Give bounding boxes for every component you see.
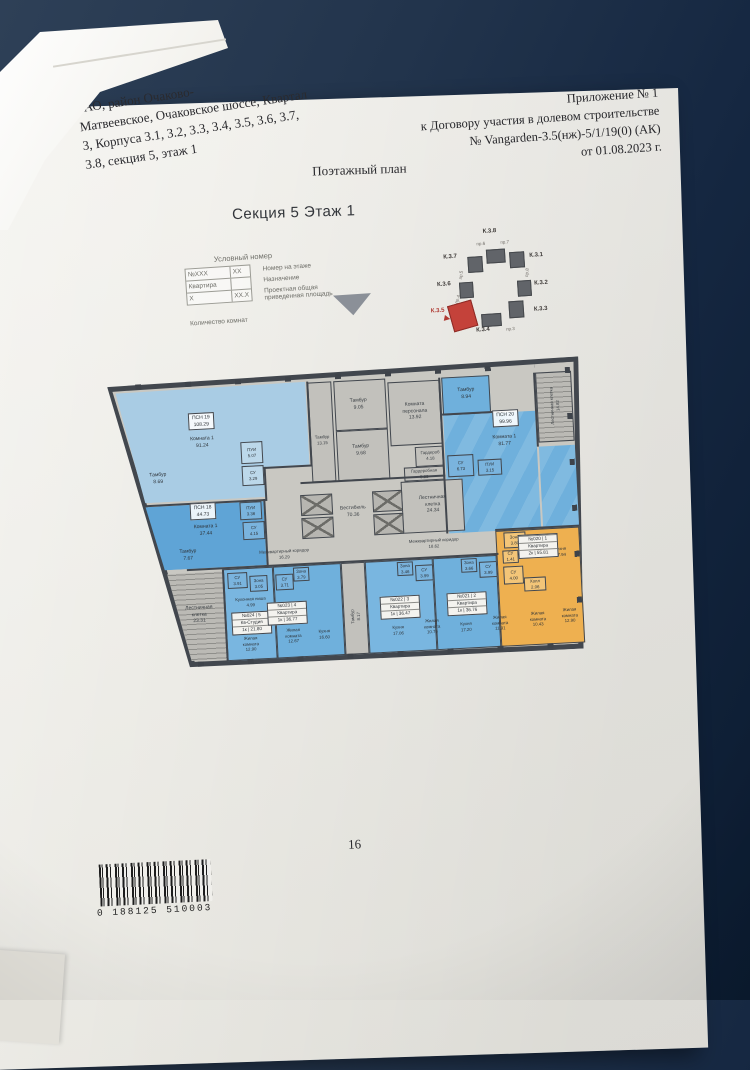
room-label: Тамбур8.69 xyxy=(149,472,167,486)
room-label: Зона3.05 xyxy=(254,578,264,590)
room-label: Кухня17.06 xyxy=(392,624,404,636)
room-label: СУ3.99 xyxy=(420,567,429,579)
legend-label-number: Номер на этаже xyxy=(262,262,311,272)
key-plan-passage-pr8: пр.8 xyxy=(524,268,530,277)
unit-stamp-024: №024 | 5 Кв-Студия 1к | 21.80 xyxy=(231,611,272,636)
room-label: Холл2.06 xyxy=(530,578,541,590)
room-label: ПУИ3.15 xyxy=(485,461,494,473)
legend-cell-area: XX.X xyxy=(232,289,252,301)
key-plan-label-k33: К.3.3 xyxy=(534,306,548,313)
room-label: ПУИ5.07 xyxy=(247,447,256,459)
legend-cell-empty xyxy=(231,277,251,289)
room-label: Тамбур13.15 xyxy=(315,434,330,446)
room-label: Тамбур9.68 xyxy=(352,443,370,457)
key-plan-label-k35: К.3.5 xyxy=(431,308,445,315)
legend-label-purpose: Назначение xyxy=(263,274,300,283)
key-plan-block-k36 xyxy=(459,282,474,299)
paper-page: ЗАО, район Очаково-Матвеевское, Очаковск… xyxy=(0,88,708,1070)
key-plan-block-k35-highlighted xyxy=(447,300,478,333)
barcode-bars-icon xyxy=(99,859,213,906)
unit-area: 2к | 55.81 xyxy=(519,548,557,557)
room-label: Тамбур8.17 xyxy=(350,609,362,624)
room-label: Жилаякомната10.43 xyxy=(529,610,546,628)
section-floor-title: Секция 5 Этаж 1 xyxy=(209,201,379,223)
room-label: Кухонная ниша4.99 xyxy=(235,596,266,609)
room-label: Жилаякомната12.90 xyxy=(561,606,578,624)
key-plan-block-k33 xyxy=(508,300,524,318)
key-plan-block-k37 xyxy=(467,256,483,273)
unit-area: 1к | 36.76 xyxy=(448,606,486,615)
key-plan-label-k38: К.3.8 xyxy=(482,228,496,235)
room-label: Комната 191.24 xyxy=(190,435,214,449)
key-plan-label-k31: К.3.1 xyxy=(529,252,543,259)
room-label-psn18: ПСН 1844.73 xyxy=(190,502,217,520)
room-label: Жилаякомната11.91 xyxy=(492,614,509,632)
key-plan-label-k34: К.3.4 xyxy=(476,327,490,334)
elevator-shaft xyxy=(372,490,403,513)
room-label: Зона3.79 xyxy=(296,568,306,580)
legend-title: Условный номер xyxy=(214,251,273,264)
key-plan-block-k32 xyxy=(517,280,532,297)
room-label: СУ4.15 xyxy=(249,525,258,537)
room-label: Жилаякомната10.76 xyxy=(424,618,441,636)
page-number: 16 xyxy=(341,836,367,853)
elevator-shaft xyxy=(301,516,334,539)
unit-stamp-021: №021 | 2 Квартира 1к | 36.76 xyxy=(446,591,487,616)
room-label: СУ3.91 xyxy=(233,575,242,587)
photo-of-document: { "page": { "address_lines": ["ЗАО, райо… xyxy=(0,0,750,1000)
room-label: Тамбур7.67 xyxy=(179,548,197,562)
unit-stamp-022: №022 | 3 Квартира 1к | 36.47 xyxy=(380,595,421,620)
room-label: Вестибюль70.36 xyxy=(340,504,366,518)
legend-sample-stamp: №XXX XX Квартира X XX.X xyxy=(184,264,252,305)
room-label: Кухня16.60 xyxy=(318,628,330,640)
room-label: Кухня17.20 xyxy=(460,621,472,633)
room-label: ПУИ3.36 xyxy=(246,505,255,517)
room-label: Тамбур9.05 xyxy=(350,397,368,411)
key-plan-label-k36: К.3.6 xyxy=(437,281,451,288)
legend-label-rooms: Количество комнат xyxy=(190,317,248,328)
room-label-psn20: ПСН 2099.96 xyxy=(492,409,519,427)
north-pointer-triangle-icon xyxy=(333,293,372,316)
key-plan: К.3.8 пр.6 пр.7 К.3.1 К.3.7 пр.5 К.3.6 п… xyxy=(428,223,585,341)
room-label: Комната 137.44 xyxy=(194,523,218,537)
room-label: СУ3.71 xyxy=(280,576,289,588)
key-plan-passage-pr5: пр.5 xyxy=(458,270,464,279)
room-label-psn19: ПСН 19108.29 xyxy=(188,412,215,430)
key-plan-arrow-icon xyxy=(444,315,451,322)
room-label: СУ1.41 xyxy=(506,550,515,562)
room-label: СУ3.29 xyxy=(249,470,258,482)
floor-plan: Тамбур9.05 Тамбур13.15 Тамбур9.68 Комнат… xyxy=(99,354,606,679)
key-plan-passage-pr6: пр.6 xyxy=(476,241,485,247)
barcode: 0 188125 510003 xyxy=(95,859,218,923)
unit-stamp-020: №020 | 1 Квартира 2к | 55.81 xyxy=(517,533,558,559)
room-label: Тамбур8.94 xyxy=(457,386,475,400)
room-label: Зона3.46 xyxy=(400,563,410,575)
elevator-shaft xyxy=(300,493,333,516)
room-label: Гардероб4.18 xyxy=(420,449,439,461)
room-label: Жилаякомната12.90 xyxy=(242,635,259,653)
legend: Условный номер №XXX XX Квартира X XX.X Н… xyxy=(184,245,369,341)
key-plan-block-k34 xyxy=(481,313,502,327)
elevator-shaft xyxy=(373,513,404,536)
unit-area: 1к | 36.77 xyxy=(268,615,306,624)
document-title: Поэтажный план xyxy=(279,160,439,181)
room-label: СУ3.99 xyxy=(484,564,493,576)
key-plan-block-k38 xyxy=(486,249,506,264)
room-label: Лестничная клетка14.82 xyxy=(548,387,561,425)
key-plan-block-k31 xyxy=(509,251,525,268)
room-label: Лестничнаяклетка24.34 xyxy=(419,494,447,515)
legend-cell-floor: XX xyxy=(230,265,250,277)
key-plan-passage-pr3: пр.3 xyxy=(506,326,515,332)
room-label: Зона3.66 xyxy=(464,560,474,572)
page-stack-corner xyxy=(0,950,65,1045)
key-plan-passage-pr7: пр.7 xyxy=(500,239,509,245)
legend-label-area: Проектная общаяприведенная площадь xyxy=(264,283,333,301)
key-plan-label-k37: К.3.7 xyxy=(443,254,457,261)
key-plan-label-k32: К.3.2 xyxy=(534,280,548,287)
unit-area: 1к | 21.80 xyxy=(233,625,271,634)
room-label: Комнатаперсонала13.92 xyxy=(402,401,428,422)
unit-stamp-023: №023 | 4 Квартира 1к | 36.77 xyxy=(267,601,308,626)
unit-area: 1к | 36.47 xyxy=(381,609,419,618)
room-label: Комната 181.77 xyxy=(492,433,516,447)
room-label: СУ6.73 xyxy=(456,460,465,472)
legend-cell-rooms: X xyxy=(187,291,233,305)
room-label: Жилаякомната12.67 xyxy=(285,627,302,645)
room-label: Лестничнаяклетка23.31 xyxy=(185,604,213,625)
room-label: Гардеробная5.33 xyxy=(411,467,438,480)
room-label: СУ4.00 xyxy=(509,569,518,581)
